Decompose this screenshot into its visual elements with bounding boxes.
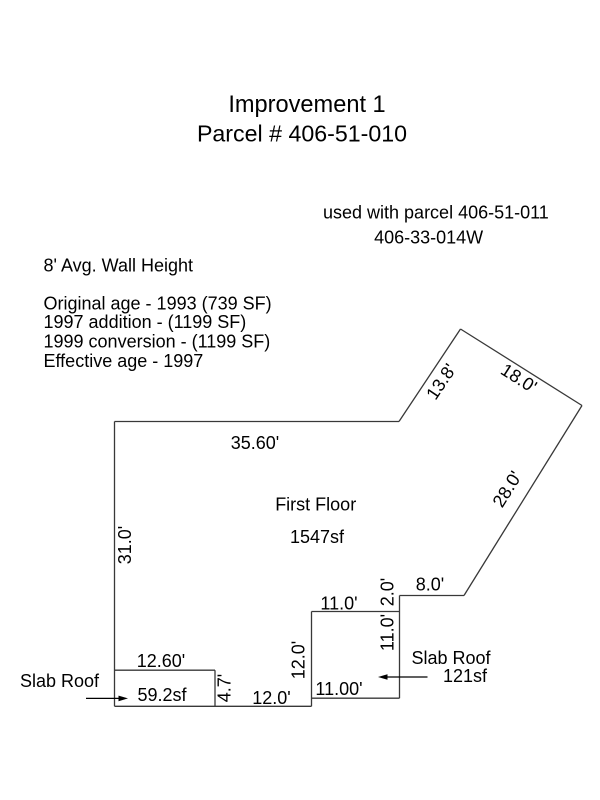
svg-text:59.2sf: 59.2sf bbox=[137, 685, 187, 705]
svg-text:1997 addition - (1199 SF): 1997 addition - (1199 SF) bbox=[44, 312, 247, 332]
svg-text:4.7': 4.7' bbox=[214, 674, 234, 702]
svg-text:Parcel # 406-51-010: Parcel # 406-51-010 bbox=[197, 120, 407, 146]
svg-text:11.0': 11.0' bbox=[377, 614, 397, 651]
svg-text:1547sf: 1547sf bbox=[290, 527, 345, 547]
svg-text:Original age - 1993 (739 SF): Original age - 1993 (739 SF) bbox=[44, 293, 272, 313]
svg-text:12.60': 12.60' bbox=[137, 651, 185, 671]
svg-text:Effective age - 1997: Effective age - 1997 bbox=[44, 351, 204, 371]
svg-text:12.0': 12.0' bbox=[252, 688, 290, 708]
svg-text:11.0': 11.0' bbox=[320, 594, 357, 614]
svg-text:12.0': 12.0' bbox=[288, 641, 308, 679]
svg-text:2.0': 2.0' bbox=[377, 578, 397, 606]
svg-text:8.0': 8.0' bbox=[416, 575, 444, 595]
svg-text:Improvement 1: Improvement 1 bbox=[228, 92, 385, 118]
svg-text:8' Avg. Wall Height: 8' Avg. Wall Height bbox=[44, 256, 194, 276]
svg-text:11.00': 11.00' bbox=[315, 679, 362, 699]
svg-text:Slab Roof: Slab Roof bbox=[411, 648, 491, 668]
svg-text:used with parcel 406-51-011: used with parcel 406-51-011 bbox=[323, 203, 549, 223]
svg-text:406-33-014W: 406-33-014W bbox=[374, 227, 483, 247]
svg-text:121sf: 121sf bbox=[443, 666, 488, 686]
svg-text:35.60': 35.60' bbox=[231, 433, 279, 453]
svg-text:31.0': 31.0' bbox=[115, 526, 135, 564]
svg-text:Slab Roof: Slab Roof bbox=[20, 671, 100, 691]
svg-text:1999 conversion - (1199 SF): 1999 conversion - (1199 SF) bbox=[44, 332, 271, 352]
svg-text:First Floor: First Floor bbox=[275, 495, 356, 515]
